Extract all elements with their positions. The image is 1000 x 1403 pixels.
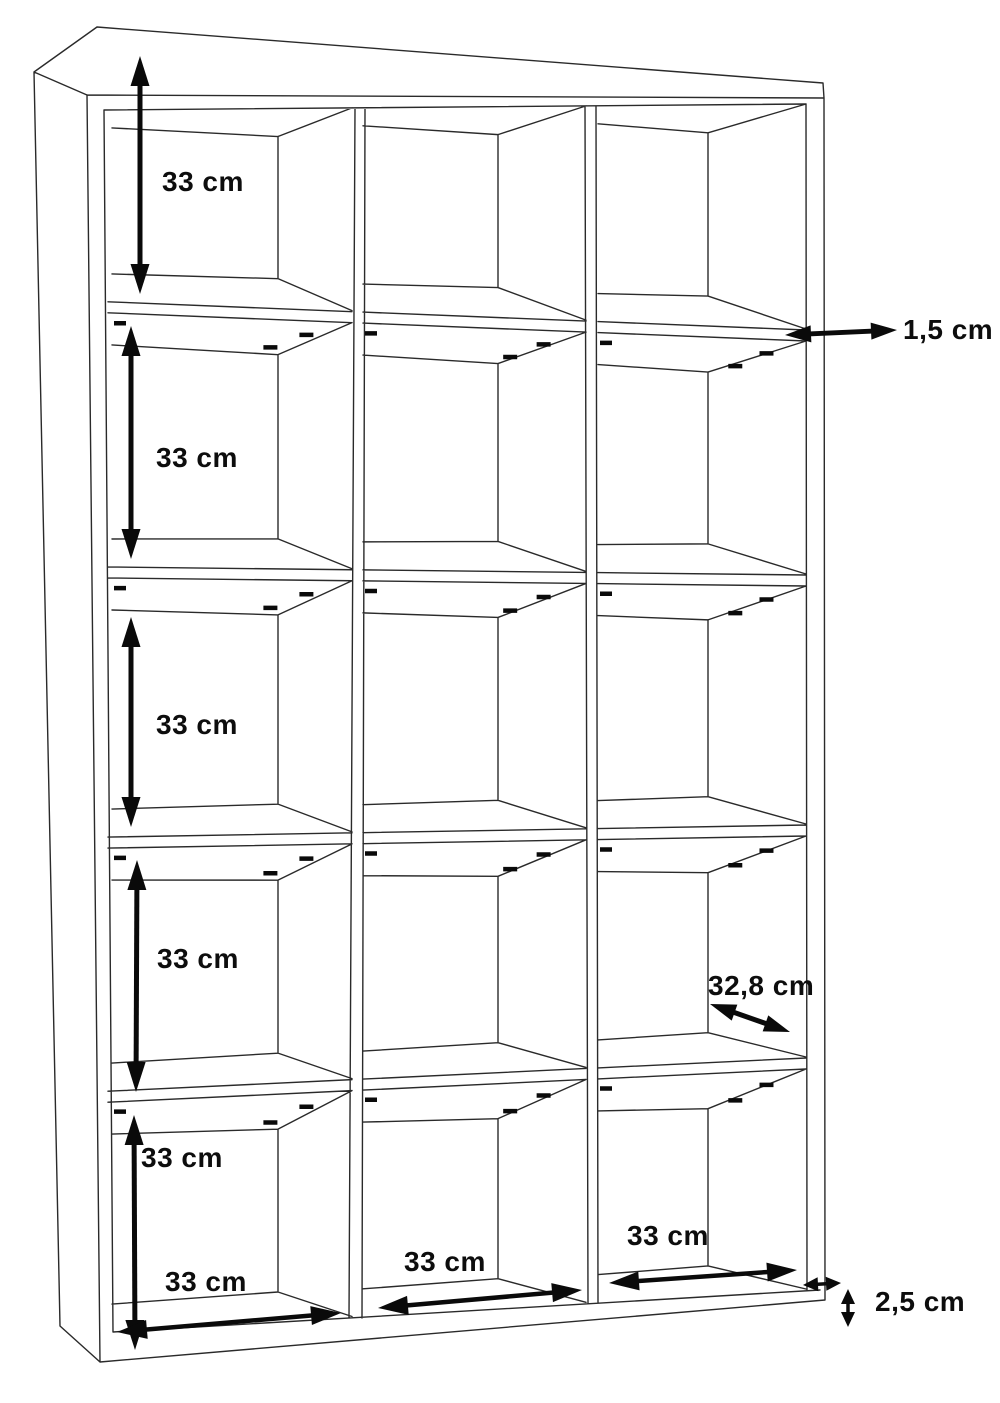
dimension-label-col3-width: 33 cm <box>627 1220 709 1251</box>
dimension-label-col1-width: 33 cm <box>165 1266 247 1297</box>
dimension-arrows <box>117 56 897 1350</box>
dimension-label-shelf-thickness: 1,5 cm <box>903 314 993 345</box>
dimension-label-row4-height: 33 cm <box>157 943 239 974</box>
dimension-label-col2-width: 33 cm <box>404 1246 486 1277</box>
dimension-label-base-height: 2,5 cm <box>875 1286 965 1317</box>
dimension-label-inner-depth: 32,8 cm <box>708 970 814 1001</box>
dimension-label-row3-height: 33 cm <box>156 709 238 740</box>
dimension-label-row2-height: 33 cm <box>156 442 238 473</box>
dimension-label-row1-height: 33 cm <box>162 166 244 197</box>
furniture-dimension-diagram: 33 cm 33 cm 33 cm 33 cm 33 cm 33 cm 33 c… <box>0 0 1000 1403</box>
dimension-label-row5-height: 33 cm <box>141 1142 223 1173</box>
shelf-unit-svg: 33 cm 33 cm 33 cm 33 cm 33 cm 33 cm 33 c… <box>0 0 1000 1403</box>
